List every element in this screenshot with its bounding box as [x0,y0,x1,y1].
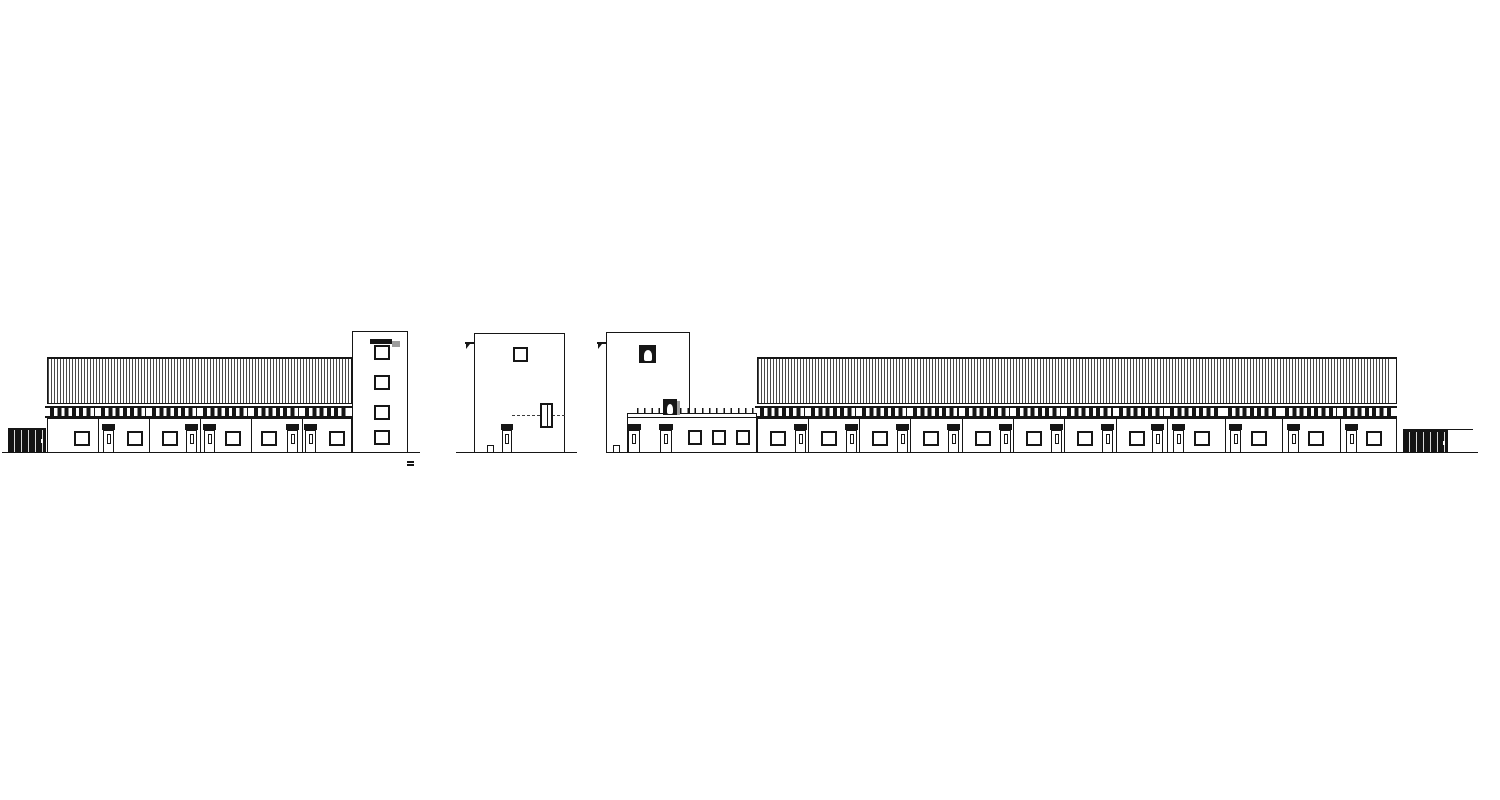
right-spout-icon-pennant-icon [598,344,602,349]
right-hall-door-5-vision-panel [1004,434,1008,444]
right-hall-panel-joint-8 [1167,418,1168,453]
left-hall-window-1 [74,431,90,446]
right-hall-door-10-vision-panel [1234,434,1238,444]
right-wing-door-2-vision-panel [664,434,668,444]
right-ground-line [612,452,1478,453]
right-hall-panel-joint-1 [808,418,809,453]
gable-recessed-window-mullion [547,405,548,426]
right-hall-window-8 [1129,431,1145,446]
left-hall-louver-group-2 [101,408,146,416]
right-hall-panel-joint-7 [1116,418,1117,453]
right-hall-panel-joint-6 [1064,418,1065,453]
right-wing-window-1 [688,430,702,445]
right-hall-door-2-vision-panel [850,434,854,444]
right-hall-louver-group-8 [1119,408,1164,416]
gable-door-vision-panel [505,434,509,444]
right-hall-window-1 [770,431,786,446]
left-hall-window-2 [127,431,143,446]
right-hall-door-8-vision-panel [1156,434,1160,444]
left-hall-panel-joint-4 [251,418,252,453]
left-tower-window-3 [374,405,390,420]
right-hall-panel-joint-9 [1225,418,1226,453]
left-hall-window-3 [162,431,178,446]
left-hall-window-4 [225,431,241,446]
left-hall-door-4-vision-panel [291,434,295,444]
right-hall-window-10 [1251,431,1267,446]
right-wing-coping-line [627,417,757,418]
right-hall-louver-group-7 [1067,408,1113,416]
left-tower-awning [370,339,392,344]
gable-datum-dashed-line [512,415,565,416]
left-hall-window-6 [329,431,345,446]
right-hall-door-7-vision-panel [1106,434,1110,444]
right-tower-bell-door-bell-icon [667,404,673,414]
left-hall-louver-group-3 [152,408,197,416]
right-hall-roof-edge [1391,359,1396,403]
left-hall-panel-joint-1 [98,418,99,453]
gable-window [513,347,528,362]
right-wing-roof-ticks [637,408,757,413]
right-yard-gate-handle-icon [1443,441,1445,445]
right-hall-panel-joint-5 [1013,418,1014,453]
left-tower-window-1 [374,345,390,360]
right-hall-roof [757,357,1397,404]
right-hall-window-12 [1366,431,1382,446]
left-hall-door-5-vision-panel [309,434,313,444]
elevation-sheet [0,0,1500,800]
right-tower-bell-door-shadow [677,401,680,415]
right-yard-gate [1403,430,1448,452]
left-hall-roof [47,357,352,404]
left-hall-door-1-vision-panel [107,434,111,444]
left-hall-louver-group-1 [50,408,95,416]
right-hall-louver-group-3 [862,408,907,416]
gable-spout-icon-pennant-icon [466,344,470,349]
left-tower-window-2 [374,375,390,390]
right-tower-bell-window-bell-icon [644,350,652,361]
right-hall-door-6-vision-panel [1055,434,1059,444]
right-hall-panel-joint-4 [962,418,963,453]
left-ground-line [2,452,420,453]
right-wing-door-1-vision-panel [632,434,636,444]
right-hall-panel-joint-10 [1282,418,1283,453]
left-hall-panel-joint-5 [302,418,303,453]
right-hall-window-3 [872,431,888,446]
right-hall-window-7 [1077,431,1093,446]
left-tower-awning-shadow [392,341,400,347]
right-hall-door-11-vision-panel [1292,434,1296,444]
left-yard-gate-handle-icon [41,439,43,443]
right-hall-window-4 [923,431,939,446]
right-hall-window-9 [1194,431,1210,446]
right-hall-louver-group-4 [913,408,959,416]
right-hall-door-1-vision-panel [799,434,803,444]
left-hall-panel-joint-2 [149,418,150,453]
right-hall-door-3-vision-panel [901,434,905,444]
right-hall-door-12-vision-panel [1350,434,1354,444]
right-hall-panel-joint-11 [1340,418,1341,453]
right-hall-panel-joint-2 [859,418,860,453]
right-hall-louver-group-11 [1285,408,1337,416]
right-hall-louver-group-2 [811,408,856,416]
left-hall-panel-joint-3 [200,418,201,453]
right-wing-window-2 [712,430,726,445]
left-hall-louver-group-5 [254,408,299,416]
right-wing-window-3 [736,430,750,445]
right-hall-louver-group-12 [1343,408,1394,416]
right-hall-louver-group-1 [760,408,805,416]
gable-ground-line [456,452,577,453]
right-hall-louver-group-10 [1228,408,1278,416]
right-hall-louver-group-9 [1170,408,1220,416]
datum-mark-icon [407,461,414,463]
datum-mark-icon [407,464,414,466]
left-hall-window-5 [261,431,277,446]
left-hall-door-2-vision-panel [190,434,194,444]
right-hall-window-6 [1026,431,1042,446]
left-hall-door-3-vision-panel [208,434,212,444]
right-hall-panel-joint-3 [910,418,911,453]
right-hall-louver-group-6 [1016,408,1061,416]
left-hall-louver-group-4 [203,408,248,416]
left-hall-louver-group-6 [305,408,349,416]
right-hall-door-9-vision-panel [1177,434,1181,444]
right-hall-door-4-vision-panel [952,434,956,444]
left-tower-window-4 [374,430,390,445]
right-hall-window-11 [1308,431,1324,446]
right-hall-window-2 [821,431,837,446]
right-hall-louver-group-5 [965,408,1010,416]
right-hall-window-5 [975,431,991,446]
